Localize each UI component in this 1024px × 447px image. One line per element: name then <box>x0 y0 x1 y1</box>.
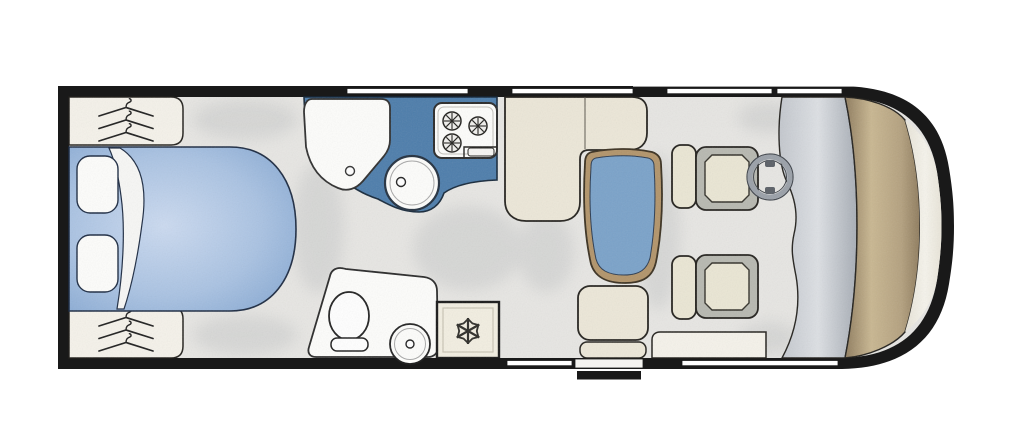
window-top-2 <box>512 89 633 94</box>
entry-step: Entry step <box>577 371 641 380</box>
roofline-highlight <box>633 85 925 87</box>
window-bottom-2 <box>682 361 838 366</box>
entry-door-opening <box>575 359 643 368</box>
motorhome-floorplan-svg: Motorhome floor plan <box>0 0 1024 447</box>
floor-texture <box>55 84 960 374</box>
window-top-4 <box>777 89 842 94</box>
window-top-3 <box>667 89 772 94</box>
floorplan-canvas: Motorhome floor plan <box>0 0 1024 447</box>
window-bottom-1 <box>507 361 572 366</box>
window-top-1 <box>347 89 468 94</box>
